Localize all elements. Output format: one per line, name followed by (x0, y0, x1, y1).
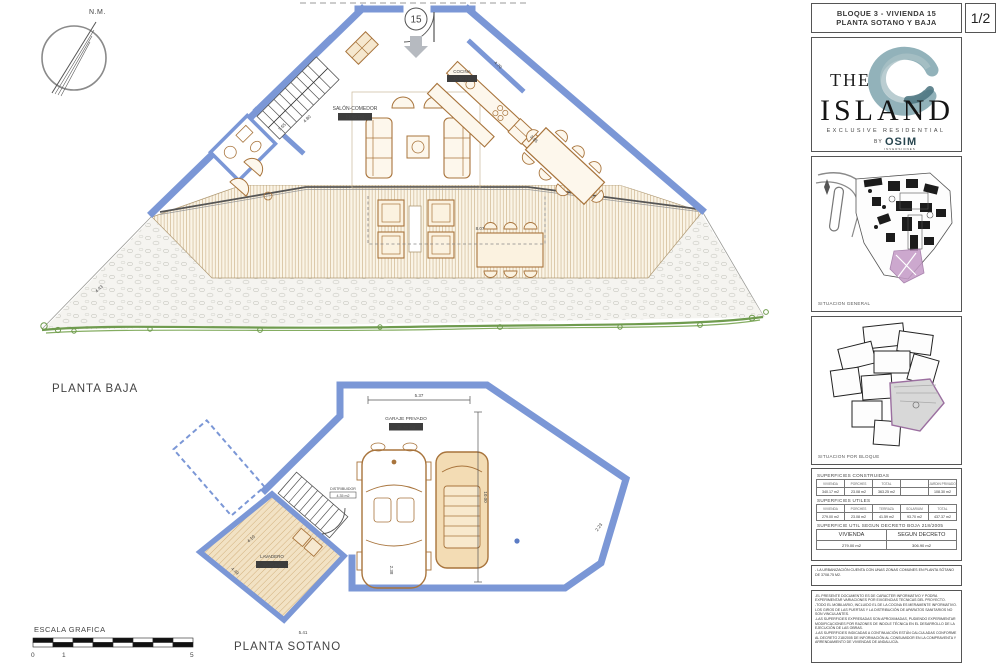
scale-tick-0: 0 (31, 652, 35, 659)
column-dot (514, 538, 519, 543)
constructed-table: VIVIENDA PORCHES TOTAL JARDIN PRIVADO 34… (816, 479, 957, 496)
the-island-logo: THE ISLAND EXCLUSIVE RESIDENTIAL BY OSIM… (812, 38, 961, 151)
lavadero-label: LAVADERO (260, 554, 284, 559)
logo-tagline: EXCLUSIVE RESIDENTIAL (827, 128, 946, 134)
scale-bar: ESCALA GRAFICA 0 1 5 (31, 625, 194, 659)
disclaimer-line: -LAS SUPERFICIES INDICADAS A CONTINUACIÓ… (815, 631, 958, 645)
dashed-shaft (174, 420, 265, 515)
common-zones-note: - LA URBANIZACIÓN CUENTA CON UNAS ZONAS … (811, 565, 962, 586)
table-value-cell: 41.59 m2 (873, 513, 901, 521)
dim-541: 5.41 (299, 630, 308, 635)
disclaimer-line: -EL PRESENTE DOCUMENTO ES DE CARACTER IN… (815, 594, 958, 603)
planta-baja-plan: 15 SALÓN-COMEDOR 51.95 m2 COCINA 16.50 m… (41, 3, 769, 395)
scale-label: ESCALA GRAFICA (34, 625, 106, 634)
situacion-general-label: SITUACION GENERAL (818, 301, 870, 306)
table-value-cell: 93.70 m2 (901, 513, 929, 521)
logo-brand-sub: INVERSIONES (884, 147, 916, 151)
decree-title: SUPERFICIE UTIL SEGUN DECRETO BOJA 218/2… (817, 523, 957, 528)
situacion-bloque-map (812, 317, 961, 463)
logo-island: ISLAND (820, 94, 954, 127)
table-header-cell: VIVIENDA (817, 530, 887, 541)
table-value-cell: 279.00 m2 (817, 513, 845, 521)
disclaimer-box: -EL PRESENTE DOCUMENTO ES DE CARACTER IN… (811, 590, 962, 663)
salon-label: SALÓN-COMEDOR (333, 105, 378, 112)
title-line-2: PLANTA SOTANO Y BAJA (836, 18, 937, 27)
table-header-cell: SOLARIUM (901, 505, 929, 513)
planta-sotano-plan: 5.37 10.00 4.10 4.49 2.38 5.41 2.23 GARA… (174, 385, 626, 653)
distribuidor-area: 4.35 m2 (337, 494, 350, 498)
situacion-bloque-label: SITUACION POR BLOQUE (818, 454, 880, 459)
table-header-cell (901, 480, 929, 488)
planta-baja-label: PLANTA BAJA (52, 383, 138, 395)
planta-sotano-label: PLANTA SOTANO (234, 641, 341, 653)
constructed-title: SUPERFICIES CONSTRUIDAS (817, 473, 957, 478)
distribuidor-label: DISTRIBUIDOR (330, 487, 356, 491)
table-header-cell: VIVIENDA (817, 505, 845, 513)
page-number: 1/2 (965, 3, 996, 33)
plan-sheet: N.M. (0, 0, 1000, 666)
cocina-label: COCINA (453, 69, 471, 74)
table-value-cell: 23.08 m2 (845, 488, 873, 496)
table-value-cell: 108.30 m2 (929, 488, 957, 496)
table-value-cell: 279.00 m2 (817, 541, 887, 550)
cocina-area: 16.50 m2 (453, 76, 472, 81)
garaje-area: 48.76 m2 (397, 425, 416, 430)
table-header-cell: JARDIN PRIVADO (929, 480, 957, 488)
situacion-bloque-box: SITUACION POR BLOQUE (811, 316, 962, 465)
table-value-cell: 363.25 m2 (873, 488, 901, 496)
table-header-cell: PORCHES (845, 480, 873, 488)
entrance-number: 15 (410, 15, 422, 26)
salon-area: 51.95 m2 (346, 115, 365, 120)
table-value-cell: 306.90 m2 (887, 541, 957, 550)
table-value-cell: 340.17 m2 (817, 488, 845, 496)
north-label: N.M. (89, 9, 106, 16)
title-line-1: BLOQUE 3 - VIVIENDA 15 (837, 9, 936, 18)
logo-the: THE (830, 70, 871, 90)
useful-title: SUPERFICIES UTILES (817, 498, 957, 503)
situacion-general-box: SITUACION GENERAL (811, 156, 962, 312)
table-header-cell: PORCHES (845, 505, 873, 513)
dim-807: 8.07 (476, 226, 485, 231)
table-header-cell: TOTAL (929, 505, 957, 513)
useful-table: VIVIENDA PORCHES TERRAZA SOLARIUM TOTAL … (816, 504, 957, 521)
lavadero-area: 26.25 m2 (263, 562, 282, 567)
dim-537: 5.37 (415, 393, 424, 398)
logo-by: BY (874, 139, 883, 145)
table-value-cell: 437.37 m2 (929, 513, 957, 521)
garaje-label: GARAJE PRIVADO (385, 416, 427, 422)
table-header-cell: VIVIENDA (817, 480, 845, 488)
dim-1000: 10.00 (483, 491, 488, 503)
title-block: BLOQUE 3 - VIVIENDA 15 PLANTA SOTANO Y B… (811, 3, 962, 33)
disclaimer-line: -TODO EL MOBILIARIO, INCLUIDO EL DE LA C… (815, 603, 958, 617)
decree-table: VIVIENDA SEGUN DECRETO 279.00 m2 306.90 … (816, 529, 957, 550)
scale-tick-5: 5 (190, 652, 194, 659)
situacion-general-map (812, 157, 961, 311)
table-header-cell: SEGUN DECRETO (887, 530, 957, 541)
car-2 (436, 452, 488, 568)
table-header-cell: TERRAZA (873, 505, 901, 513)
table-header-cell: TOTAL (873, 480, 901, 488)
disclaimer-line: -LAS SUPERFICIES EXPRESADAS SON APROXIMA… (815, 617, 958, 631)
logo-box: THE ISLAND EXCLUSIVE RESIDENTIAL BY OSIM… (811, 37, 962, 152)
north-arrow: N.M. (42, 9, 106, 96)
dim-238: 2.38 (389, 566, 394, 575)
surface-tables: SUPERFICIES CONSTRUIDAS VIVIENDA PORCHES… (811, 468, 962, 561)
table-value-cell: 23.08 m2 (845, 513, 873, 521)
table-value-cell (901, 488, 929, 496)
scale-tick-1: 1 (62, 652, 66, 659)
